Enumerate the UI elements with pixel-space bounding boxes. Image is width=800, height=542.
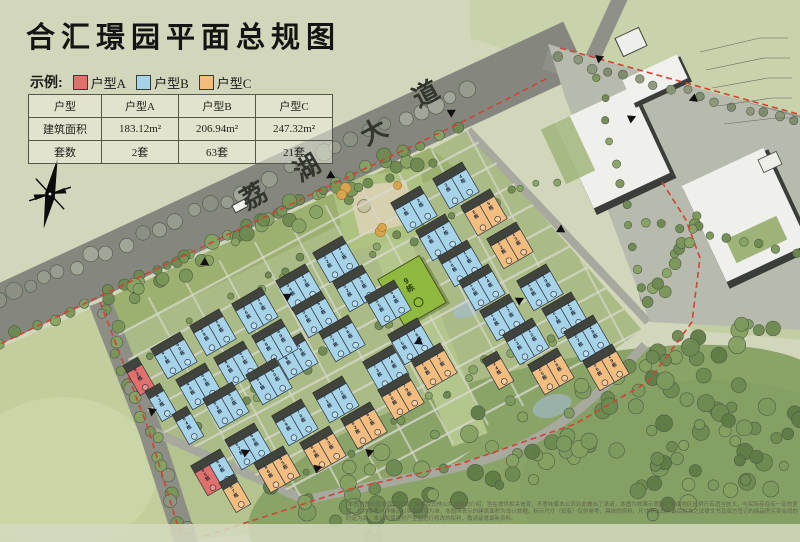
area-type-a: 183.12m² — [102, 118, 179, 141]
type-b-swatch — [136, 75, 151, 90]
legend-item-type-b: 户型B — [136, 73, 189, 92]
type-a-label: 户型A — [91, 73, 126, 92]
row-label-count: 套数 — [29, 141, 102, 164]
type-a-swatch — [73, 75, 88, 90]
disclaimer: ·本图对图示区域周边环境、交通及其他公共设施的介绍，旨在提供相关信息，不意味着本… — [346, 502, 798, 523]
legend-item-type-c: 户型C — [199, 73, 252, 92]
page-title: 合汇璟园平面总规图 — [26, 14, 341, 56]
area-type-b: 206.94m² — [179, 118, 256, 141]
legend-item-type-a: 户型A — [73, 73, 126, 92]
table-row-area: 建筑面积 183.12m² 206.94m² 247.32m² — [29, 118, 333, 141]
site-plan-poster: 1栋2栋3栋4栋6栋5栋8栋7栋10栋11栋12栋13栋9栋15栋14栋18栋1… — [0, 0, 800, 542]
type-c-label: 户型C — [217, 73, 252, 92]
header-type-c: 户型C — [256, 95, 333, 118]
count-type-a: 2套 — [102, 141, 179, 164]
bottom-margin — [0, 524, 800, 542]
header-type-b: 户型B — [179, 95, 256, 118]
legend-prefix: 示例: — [30, 72, 63, 92]
header-type: 户型 — [29, 95, 102, 118]
header-type-a: 户型A — [102, 95, 179, 118]
area-type-c: 247.32m² — [256, 118, 333, 141]
type-b-label: 户型B — [154, 73, 189, 92]
type-c-swatch — [199, 75, 214, 90]
legend: 示例: 户型A 户型B 户型C — [30, 72, 251, 92]
table-header-row: 户型 户型A 户型B 户型C — [29, 95, 333, 118]
row-label-area: 建筑面积 — [29, 118, 102, 141]
unit-type-table: 户型 户型A 户型B 户型C 建筑面积 183.12m² 206.94m² 24… — [28, 94, 333, 164]
count-type-b: 63套 — [179, 141, 256, 164]
